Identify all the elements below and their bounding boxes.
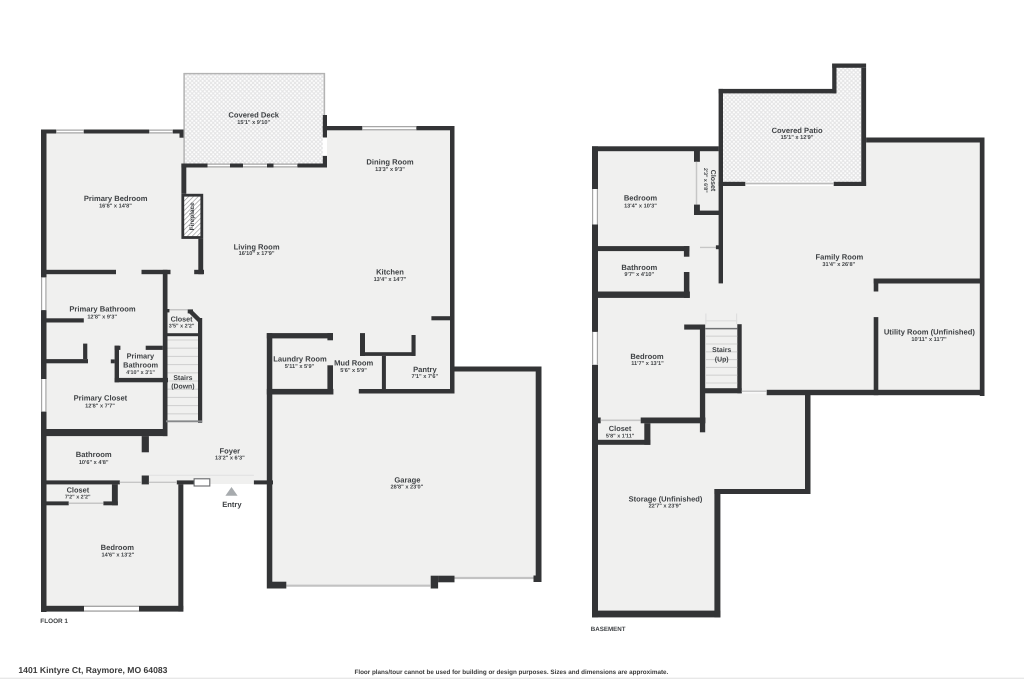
svg-text:Mud Room: Mud Room [334,358,373,367]
svg-text:Closet: Closet [709,170,717,192]
svg-text:14'6" x 13'2": 14'6" x 13'2" [101,553,134,559]
svg-text:11'7" x 13'1": 11'7" x 13'1" [631,361,664,367]
svg-text:Bedroom: Bedroom [101,543,135,552]
svg-text:10'11" x 11'7": 10'11" x 11'7" [911,337,947,343]
svg-text:9'7" x 4'10": 9'7" x 4'10" [624,272,654,278]
svg-text:31'4" x 26'8": 31'4" x 26'8" [822,262,855,268]
svg-text:Kitchen: Kitchen [376,268,404,277]
svg-text:Bedroom: Bedroom [630,352,664,361]
svg-text:Pantry: Pantry [413,365,437,374]
svg-text:Fireplace: Fireplace [189,202,196,231]
svg-text:Stairs: Stairs [173,375,192,382]
svg-text:Covered Patio: Covered Patio [772,126,823,135]
svg-text:13'4" x 14'7": 13'4" x 14'7" [374,277,407,283]
svg-text:Entry: Entry [222,500,242,509]
svg-text:15'1" x 9'10": 15'1" x 9'10" [237,120,270,126]
svg-text:Primary Closet: Primary Closet [74,394,128,403]
svg-text:13'4" x 10'3": 13'4" x 10'3" [624,203,657,209]
svg-text:Dining Room: Dining Room [366,158,413,167]
svg-text:Stairs: Stairs [712,347,731,354]
svg-text:Floor plans/tour cannot be use: Floor plans/tour cannot be used for buil… [354,669,668,676]
svg-text:22'7" x 23'9": 22'7" x 23'9" [649,504,682,510]
svg-text:16'8" x 14'8": 16'8" x 14'8" [99,204,132,210]
svg-text:Bathroom: Bathroom [621,263,657,272]
svg-text:16'10" x 17'9": 16'10" x 17'9" [239,251,275,257]
svg-text:5'8" x 1'11": 5'8" x 1'11" [606,433,635,439]
svg-text:28'8" x 23'0": 28'8" x 23'0" [390,485,423,491]
svg-text:(Down): (Down) [171,383,194,390]
svg-text:Garage: Garage [394,476,420,485]
svg-text:5'6" x 5'9": 5'6" x 5'9" [340,368,367,374]
svg-text:12'8" x 9'3": 12'8" x 9'3" [87,315,117,321]
svg-text:7'2" x 2'2": 7'2" x 2'2" [65,494,91,500]
svg-text:3'5" x 2'2": 3'5" x 2'2" [169,323,195,329]
svg-text:Bedroom: Bedroom [624,194,658,203]
svg-text:1401 Kintyre Ct, Raymore, MO 6: 1401 Kintyre Ct, Raymore, MO 64083 [18,665,167,675]
svg-text:Closet: Closet [171,315,194,324]
svg-text:Closet: Closet [609,424,632,433]
svg-text:Living Room: Living Room [234,242,280,251]
svg-text:Primary Bathroom: Primary Bathroom [69,305,136,314]
svg-text:5'11" x 5'9": 5'11" x 5'9" [285,364,315,370]
svg-text:Laundry Room: Laundry Room [273,355,327,364]
svg-text:Closet: Closet [67,485,90,494]
svg-text:BASEMENT: BASEMENT [591,626,626,633]
svg-text:4'10" x 3'1": 4'10" x 3'1" [126,370,155,376]
svg-text:Primary Bedroom: Primary Bedroom [84,194,148,203]
svg-text:Storage (Unfinished): Storage (Unfinished) [629,495,703,504]
svg-text:FLOOR 1: FLOOR 1 [40,618,68,625]
svg-text:15'1" x 12'9": 15'1" x 12'9" [781,135,814,141]
svg-text:Foyer: Foyer [219,446,240,455]
svg-text:13'3" x 9'3": 13'3" x 9'3" [375,167,405,173]
svg-text:12'8" x 7'7": 12'8" x 7'7" [85,403,115,409]
svg-text:2'3" x 6'8": 2'3" x 6'8" [702,168,708,193]
svg-text:Primary: Primary [127,351,155,360]
svg-text:7'1" x 7'6": 7'1" x 7'6" [411,374,438,380]
svg-text:Utility Room (Unfinished): Utility Room (Unfinished) [884,328,976,337]
svg-text:Covered Deck: Covered Deck [228,111,279,120]
svg-text:Family Room: Family Room [816,253,864,262]
svg-text:13'2" x 6'3": 13'2" x 6'3" [215,455,245,461]
svg-text:Bathroom: Bathroom [76,450,112,459]
svg-text:(Up): (Up) [715,356,729,363]
svg-text:Bathroom: Bathroom [123,361,158,370]
svg-text:10'6" x 4'8": 10'6" x 4'8" [79,460,109,466]
